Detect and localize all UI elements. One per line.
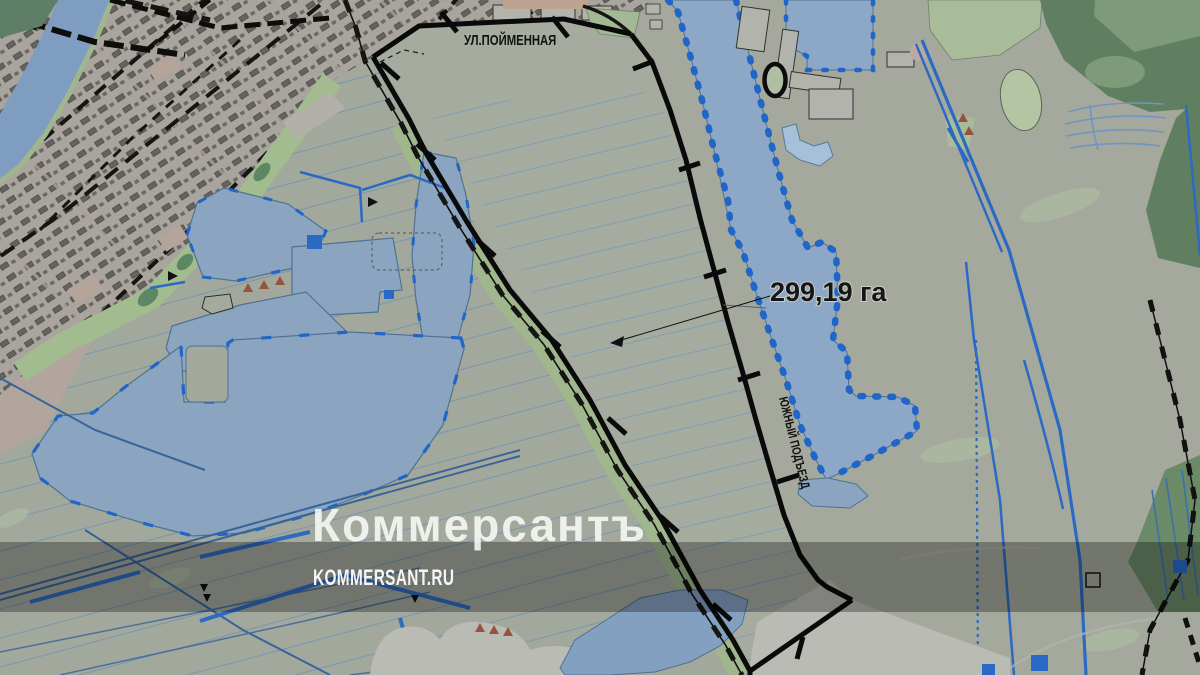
- svg-text:УЛ.ПОЙМЕННАЯ: УЛ.ПОЙМЕННАЯ: [464, 32, 556, 49]
- svg-text:KOMMERSANT.RU: KOMMERSANT.RU: [313, 566, 454, 590]
- svg-text:Коммерсантъ: Коммерсантъ: [312, 499, 647, 551]
- svg-text:299,19 га: 299,19 га: [770, 277, 887, 307]
